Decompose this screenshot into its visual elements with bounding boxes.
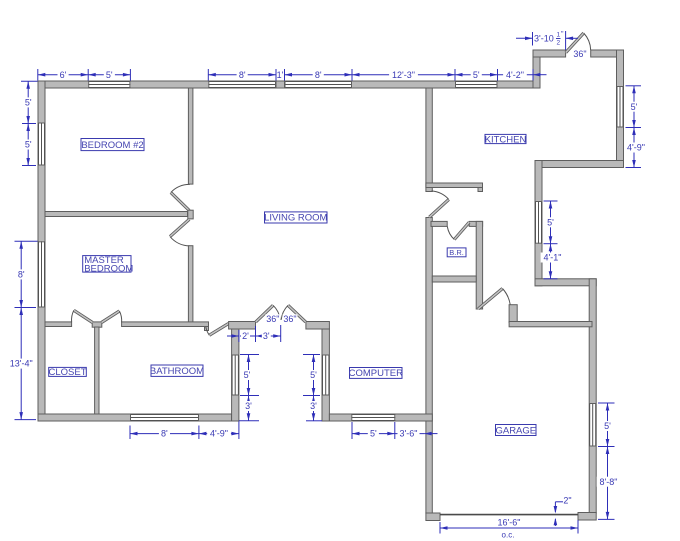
svg-text:3'-6": 3'-6" [400,429,418,439]
svg-text:12'-3": 12'-3" [392,70,415,80]
svg-text:3': 3' [310,401,317,411]
svg-text:5': 5' [631,102,638,112]
svg-text:4'-1": 4'-1" [544,253,562,263]
svg-text:8': 8' [161,429,168,439]
svg-text:BATHROOM: BATHROOM [150,366,204,377]
svg-text:8': 8' [18,269,25,279]
svg-text:8': 8' [315,70,322,80]
svg-text:o.c.: o.c. [502,531,515,540]
svg-text:2": 2" [563,496,571,506]
svg-text:LIVING ROOM: LIVING ROOM [264,213,327,224]
svg-text:5': 5' [25,140,32,150]
svg-text:8': 8' [239,70,246,80]
svg-text:BEDROOM: BEDROOM [84,263,133,274]
svg-text:4'-9": 4'-9" [627,143,645,153]
svg-text:5': 5' [473,70,480,80]
svg-text:B.R.: B.R. [449,248,464,257]
svg-text:5': 5' [25,97,32,107]
svg-text:CLOSET: CLOSET [48,367,86,378]
svg-text:13'-4": 13'-4" [10,359,33,369]
svg-text:3': 3' [263,331,270,341]
svg-text:16'-6": 16'-6" [498,518,521,528]
svg-text:COMPUTER: COMPUTER [349,368,404,379]
svg-text:1': 1' [277,70,284,80]
svg-text:36": 36" [266,314,279,324]
svg-text:5': 5' [370,429,377,439]
svg-text:5': 5' [310,370,317,380]
svg-text:3': 3' [245,401,252,411]
svg-text:4'-2": 4'-2" [506,70,524,80]
svg-text:GARAGE: GARAGE [495,425,536,436]
svg-text:8'-8": 8'-8" [600,477,618,487]
svg-text:4'-9": 4'-9" [210,429,228,439]
svg-text:BEDROOM #2: BEDROOM #2 [81,140,143,151]
svg-text:6': 6' [60,70,67,80]
svg-text:3'-10: 3'-10 [534,33,554,43]
svg-text:1: 1 [557,32,561,39]
svg-text:KITCHEN: KITCHEN [485,134,527,145]
svg-text:5': 5' [547,217,554,227]
svg-text:2: 2 [557,40,561,47]
svg-text:5': 5' [604,421,611,431]
svg-text:36": 36" [573,49,586,59]
svg-text:5': 5' [106,70,113,80]
svg-text:2': 2' [242,331,249,341]
svg-text:5': 5' [244,370,251,380]
svg-text:36": 36" [283,314,296,324]
